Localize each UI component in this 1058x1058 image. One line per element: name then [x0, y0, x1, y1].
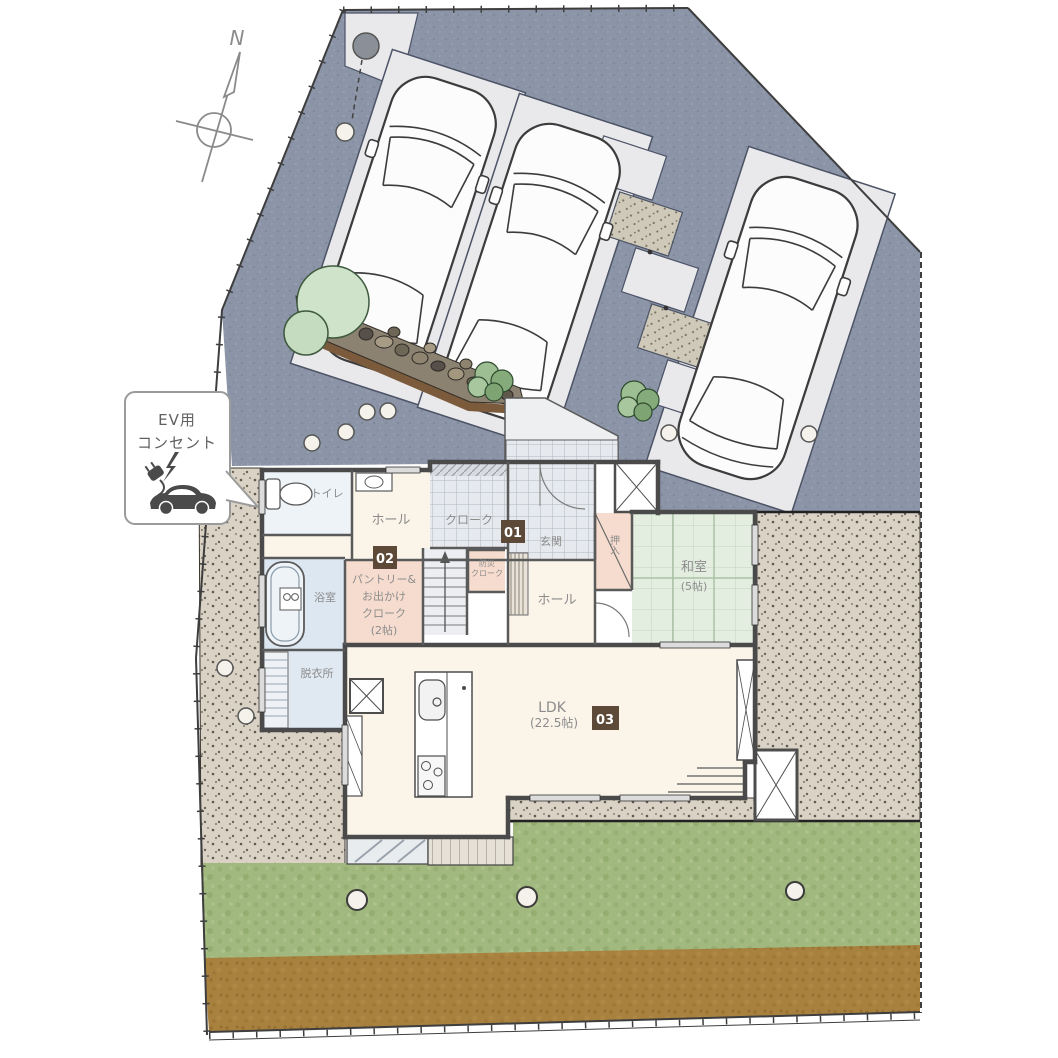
- stove-icon: [418, 756, 445, 796]
- badge-01-text: 01: [504, 526, 522, 541]
- label-washitsu: 和室: [681, 559, 707, 575]
- label-washitsu-size: (5帖): [681, 580, 708, 593]
- laundry-shelf: [264, 652, 288, 728]
- label-emergency-1: 防災: [479, 558, 495, 568]
- label-toilet: トイレ: [311, 487, 344, 500]
- label-oshiire: 押入: [608, 534, 620, 555]
- louver-door: [508, 553, 528, 615]
- soil-bed: [204, 945, 920, 1032]
- compass-north-label: N: [230, 26, 245, 50]
- label-ldk-size: (22.5帖): [530, 715, 578, 730]
- label-pantry-4: (2帖): [371, 624, 398, 637]
- badge-02-text: 02: [376, 552, 394, 567]
- tree-icon: [284, 311, 328, 355]
- entrance-storage-box: [615, 462, 658, 512]
- label-ldk: LDK: [538, 700, 567, 716]
- ev-label-2: コンセント: [137, 434, 217, 452]
- label-emergency-2: クローク: [471, 569, 503, 578]
- floor-plan-canvas: トイレ ホール クローク 玄関 押入 和室 (5帖) ホール 防災 クローク 浴…: [0, 0, 1058, 1058]
- kitchen-island: [415, 672, 472, 797]
- label-entrance: 玄関: [540, 534, 562, 548]
- label-hall-lower: ホール: [537, 593, 576, 608]
- site-plan: トイレ ホール クローク 玄関 押入 和室 (5帖) ホール 防災 クローク 浴…: [0, 0, 1058, 1058]
- compass-icon: N: [176, 26, 253, 182]
- vanity-icon: [356, 473, 392, 491]
- wood-deck: [428, 837, 513, 865]
- ev-label-1: EV用: [158, 411, 196, 429]
- tall-cabinet: [737, 660, 755, 760]
- label-pantry-3: クローク: [362, 607, 406, 620]
- bottom-porch: [347, 837, 428, 864]
- manhole-icon: [353, 33, 379, 59]
- label-bath: 浴室: [314, 590, 336, 604]
- label-pantry-2: お出かけ: [362, 589, 406, 603]
- bathtub-icon: [266, 562, 304, 646]
- pillar-box: [350, 679, 383, 713]
- room-cloak: [430, 476, 508, 548]
- label-cloak: クローク: [445, 513, 493, 527]
- label-pantry-1: パントリー&: [352, 573, 417, 586]
- room-corridor: [262, 535, 352, 558]
- label-dressing: 脱衣所: [301, 666, 334, 680]
- badge-03-text: 03: [596, 713, 614, 728]
- outdoor-storage-box: [755, 750, 797, 820]
- label-hall-upper: ホール: [371, 513, 410, 528]
